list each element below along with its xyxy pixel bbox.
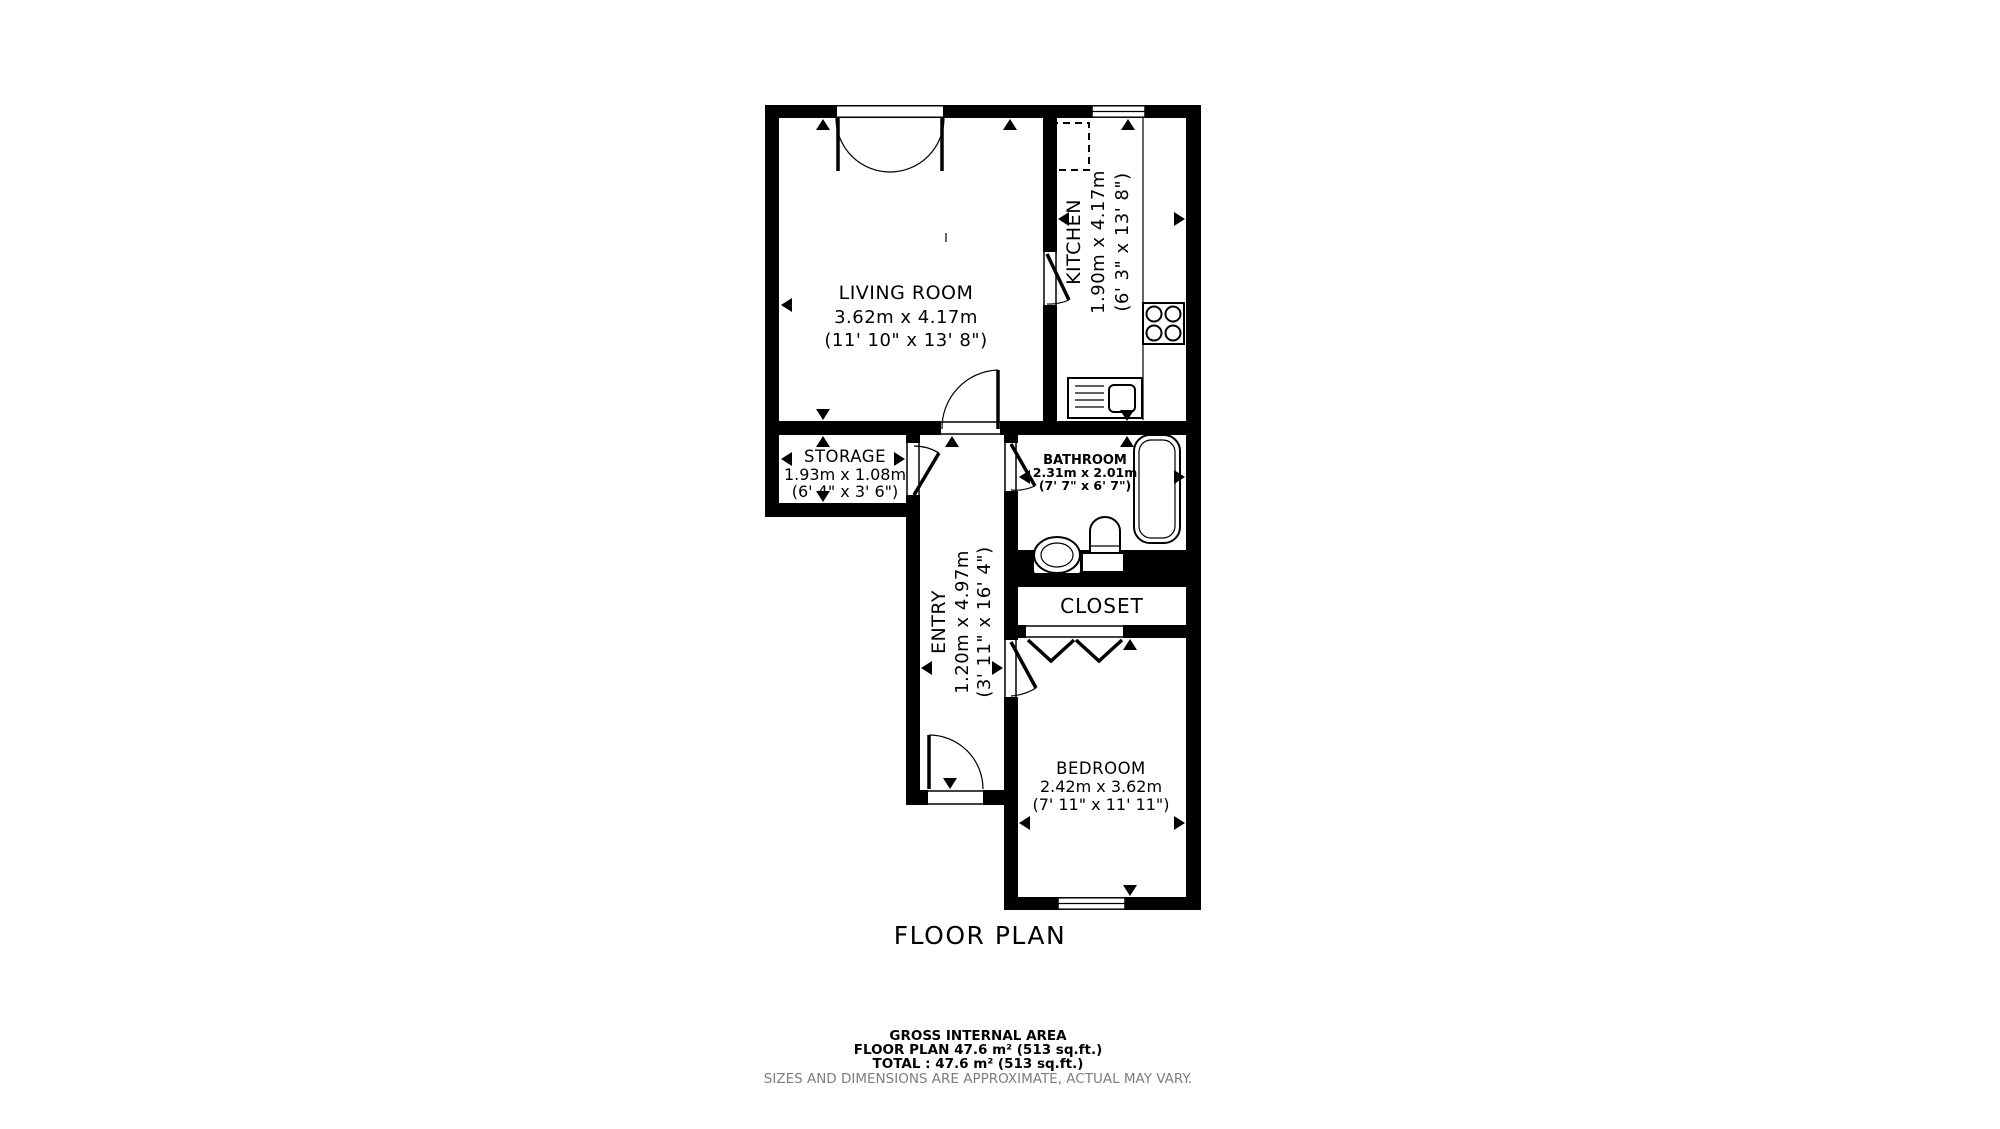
living-room-imperial: (11' 10" x 13' 8") (824, 330, 987, 351)
wall-storage-bottom (765, 503, 920, 517)
bathroom-sink (1082, 517, 1124, 572)
bedroom-imperial: (7' 11" x 11' 11") (1032, 795, 1169, 814)
stove (1143, 303, 1184, 344)
french-doors-living (836, 118, 944, 172)
kitchen-metric: 1.90m x 4.17m (1088, 170, 1109, 314)
wall-right (1186, 105, 1201, 910)
footer-total-area: TOTAL : 47.6 m² (513 sq.ft.) (873, 1056, 1084, 1072)
floor-plan-drawing: LIVING ROOM 3.62m x 4.17m (11' 10" x 13'… (0, 0, 2000, 1125)
living-room-name: LIVING ROOM (839, 282, 974, 304)
bedroom-name: BEDROOM (1056, 759, 1146, 778)
door-living-entry (942, 370, 998, 429)
storage-imperial: (6' 4" x 3' 6") (792, 482, 899, 501)
storage-name: STORAGE (804, 447, 886, 466)
bedroom-metric: 2.42m x 3.62m (1040, 777, 1162, 796)
plan-title: FLOOR PLAN (894, 921, 1066, 950)
entry-name: ENTRY (928, 590, 950, 654)
kitchen-imperial: (6' 3" x 13' 8") (1112, 172, 1133, 311)
floor-plan-stage: LIVING ROOM 3.62m x 4.17m (11' 10" x 13'… (0, 0, 2000, 1125)
bathtub (1134, 435, 1180, 543)
wall-left (765, 105, 779, 517)
toilet (1033, 537, 1081, 574)
kitchen-name: KITCHEN (1063, 199, 1085, 285)
closet-bifold-doors (1028, 640, 1122, 661)
entry-metric: 1.20m x 4.97m (952, 550, 973, 694)
wall-entry-left (906, 503, 920, 805)
entry-imperial: (3' 11" x 16' 4") (974, 546, 995, 697)
living-room-metric: 3.62m x 4.17m (834, 307, 978, 328)
bathroom-imperial: (7' 7" x 6' 7") (1039, 478, 1131, 493)
footer-disclaimer: SIZES AND DIMENSIONS ARE APPROXIMATE, AC… (764, 1071, 1192, 1087)
front-door (929, 735, 983, 789)
closet-name: CLOSET (1060, 594, 1144, 618)
